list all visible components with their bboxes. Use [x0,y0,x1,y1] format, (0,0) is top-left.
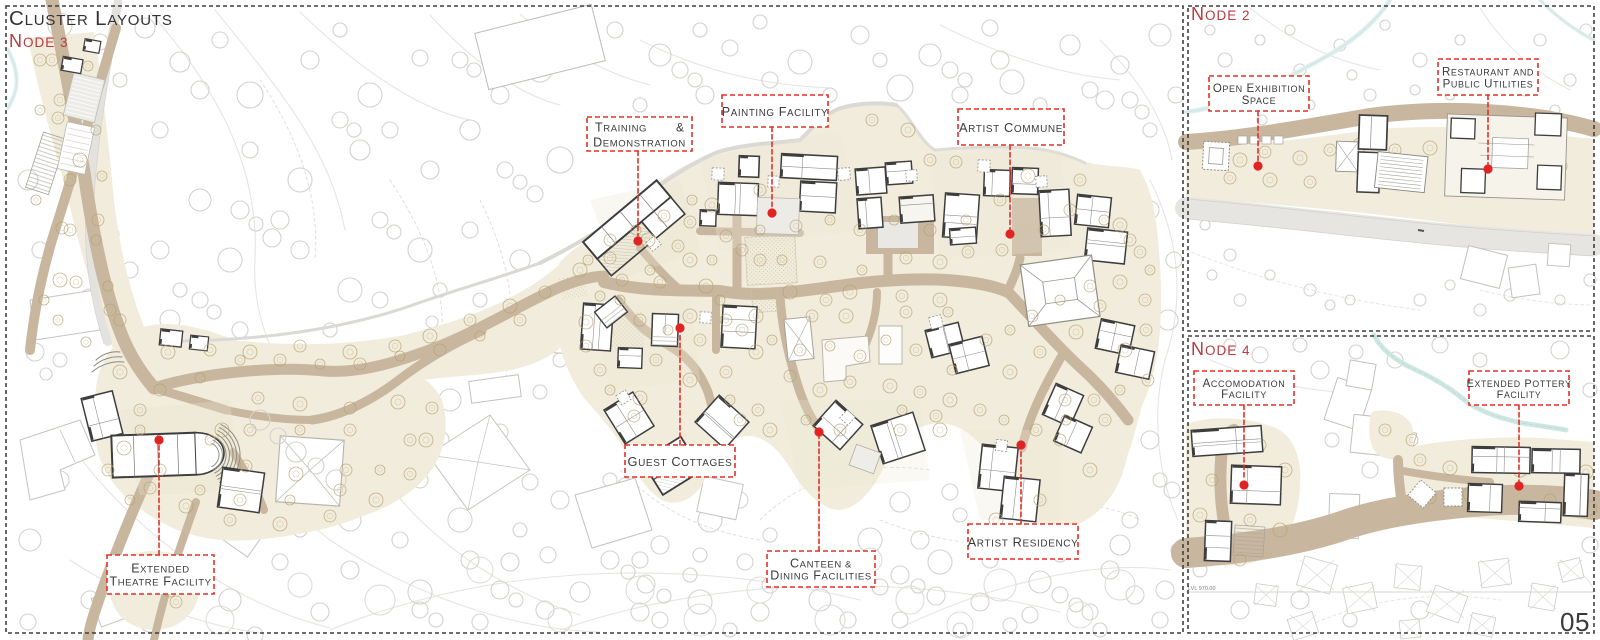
svg-text:FACILITY: FACILITY [1497,389,1542,401]
svg-text:PAINTING FACILITY: PAINTING FACILITY [722,105,828,119]
svg-text:EXTENDED: EXTENDED [131,562,190,576]
svg-text:PUBLIC UTILITIES: PUBLIC UTILITIES [1443,79,1534,91]
svg-text:LVL 970.00: LVL 970.00 [1188,586,1216,592]
svg-text:TRAINING: TRAINING [595,121,647,135]
svg-text:SPACE: SPACE [1242,95,1277,107]
svg-text:RESTAURANT AND: RESTAURANT AND [1442,67,1534,79]
svg-text:FACILITY: FACILITY [1221,389,1267,401]
svg-text:OPEN EXHIBITION: OPEN EXHIBITION [1213,83,1305,95]
svg-text:ACCOMODATION: ACCOMODATION [1203,378,1286,390]
svg-text:DINING FACILITIES: DINING FACILITIES [770,569,872,583]
svg-text:THEATRE FACILITY: THEATRE FACILITY [109,575,211,589]
svg-text:&: & [676,121,684,135]
svg-text:DEMONSTRATION: DEMONSTRATION [593,136,686,150]
svg-text:EXTENDED POTTERY: EXTENDED POTTERY [1467,378,1572,390]
